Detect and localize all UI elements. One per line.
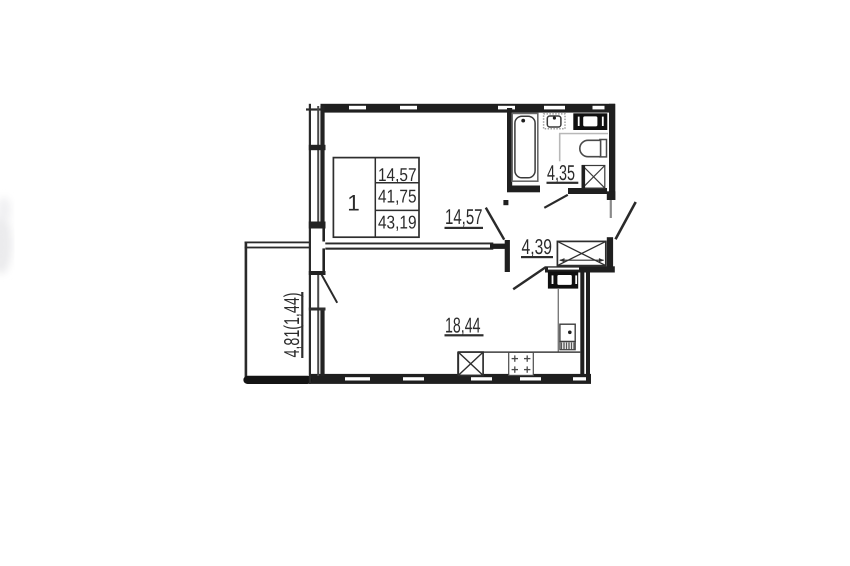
svg-text:4,81(1,44): 4,81(1,44) (280, 293, 304, 358)
svg-text:43,19: 43,19 (378, 211, 417, 232)
svg-text:1: 1 (347, 190, 360, 215)
svg-text:14,57: 14,57 (445, 205, 483, 229)
svg-text:41,75: 41,75 (378, 185, 417, 206)
svg-text:14,57: 14,57 (378, 164, 417, 185)
svg-text:4,35: 4,35 (547, 161, 575, 185)
svg-text:4,39: 4,39 (522, 235, 553, 259)
svg-text:18,44: 18,44 (445, 314, 481, 338)
